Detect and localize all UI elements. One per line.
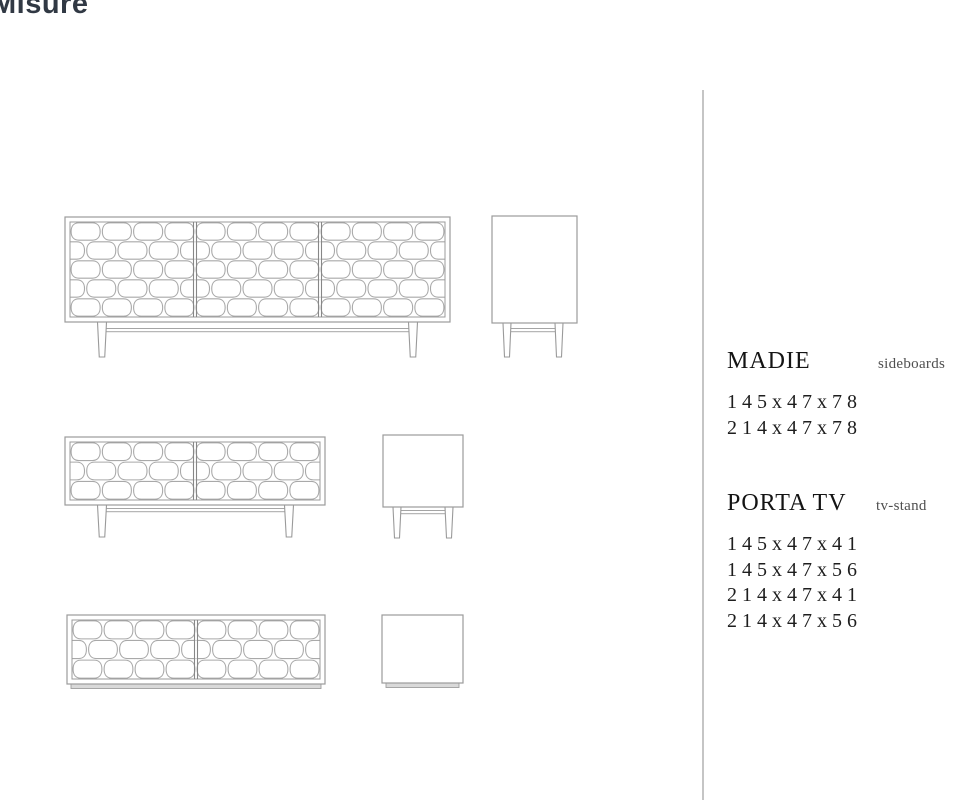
dimension-line: 214x47x56 — [727, 609, 967, 635]
spec-madie-type-label: sideboards — [878, 356, 945, 373]
dimension-line: 214x47x78 — [727, 415, 967, 441]
dimension-line: 214x47x41 — [727, 583, 967, 609]
spec-madie-name: MADIE — [727, 347, 811, 376]
dimension-line: 145x47x56 — [727, 558, 967, 584]
spec-madie: MADIE sideboards 145x47x78 214x47x78 — [727, 347, 967, 441]
spec-porta-tv-dimensions: 145x47x41 145x47x56 214x47x41 214x47x56 — [727, 532, 967, 634]
spec-porta-tv-type-label: tv-stand — [876, 498, 927, 515]
spec-porta-tv-name: PORTA TV — [727, 489, 847, 518]
vertical-divider — [702, 90, 704, 800]
spec-porta-tv: PORTA TV tv-stand 145x47x41 145x47x56 21… — [727, 489, 967, 634]
drawing-tvstand-plinth-front — [58, 615, 335, 689]
dimension-line: 145x47x41 — [727, 532, 967, 558]
dimension-line: 145x47x78 — [727, 389, 967, 415]
drawing-sideboard-side — [492, 216, 577, 357]
drawing-tvstand-legs-front — [55, 437, 334, 537]
drawing-sideboard-front — [55, 217, 459, 357]
drawing-tvstand-plinth-side — [382, 615, 463, 688]
measurements-page: Misure MADIE sideboards 145x47x78 214x47… — [0, 0, 970, 800]
drawing-tvstand-legs-side — [383, 435, 463, 538]
spec-madie-dimensions: 145x47x78 214x47x78 — [727, 389, 967, 441]
